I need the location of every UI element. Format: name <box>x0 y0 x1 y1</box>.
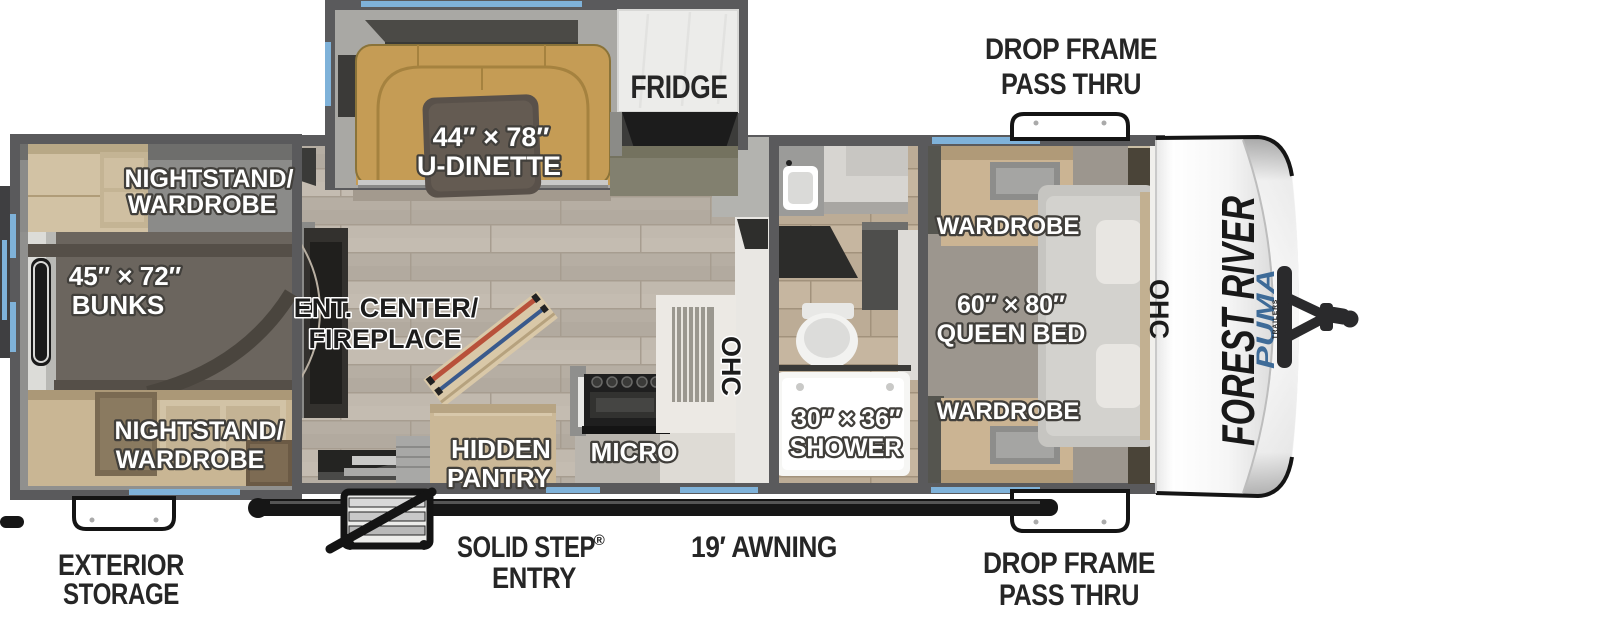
svg-text:FRIDGE: FRIDGE <box>631 69 728 105</box>
svg-text:U-DINETTE: U-DINETTE <box>417 151 561 181</box>
svg-text:ENT. CENTER/: ENT. CENTER/ <box>294 293 479 323</box>
svg-text:19′ AWNING: 19′ AWNING <box>691 531 837 564</box>
svg-text:QUEEN BED: QUEEN BED <box>937 320 1086 348</box>
svg-text:NIGHTSTAND/: NIGHTSTAND/ <box>115 417 284 445</box>
svg-text:HIDDEN: HIDDEN <box>451 434 551 464</box>
svg-text:DROP FRAME: DROP FRAME <box>985 33 1157 66</box>
svg-text:STORAGE: STORAGE <box>63 578 179 611</box>
svg-text:ENTRY: ENTRY <box>492 562 576 595</box>
svg-text:60″ × 80″: 60″ × 80″ <box>957 291 1065 319</box>
svg-text:45″ × 72″: 45″ × 72″ <box>69 261 181 291</box>
svg-text:MICRO: MICRO <box>591 437 678 467</box>
svg-text:®: ® <box>594 532 605 549</box>
svg-text:DROP FRAME: DROP FRAME <box>983 547 1155 580</box>
svg-text:BUNKS: BUNKS <box>72 290 164 320</box>
svg-text:FIREPLACE: FIREPLACE <box>308 324 461 354</box>
svg-text:WARDROBE: WARDROBE <box>937 213 1080 240</box>
svg-text:WARDROBE: WARDROBE <box>937 398 1080 425</box>
svg-text:44″ × 78″: 44″ × 78″ <box>433 122 550 152</box>
svg-text:SHOWER: SHOWER <box>790 434 903 462</box>
svg-text:OHC: OHC <box>1144 279 1174 339</box>
svg-text:PASS THRU: PASS THRU <box>1001 68 1141 101</box>
svg-text:NIGHTSTAND/: NIGHTSTAND/ <box>125 165 294 193</box>
svg-text:TRAILERS: TRAILERS <box>1272 299 1279 340</box>
svg-text:SOLID STEP: SOLID STEP <box>457 531 595 564</box>
svg-text:30″ × 36″: 30″ × 36″ <box>793 405 901 433</box>
svg-text:WARDROBE: WARDROBE <box>116 446 265 474</box>
svg-text:WARDROBE: WARDROBE <box>128 191 277 219</box>
svg-text:PASS THRU: PASS THRU <box>999 579 1139 612</box>
svg-text:OHC: OHC <box>716 336 746 396</box>
svg-text:PANTRY: PANTRY <box>447 463 551 493</box>
